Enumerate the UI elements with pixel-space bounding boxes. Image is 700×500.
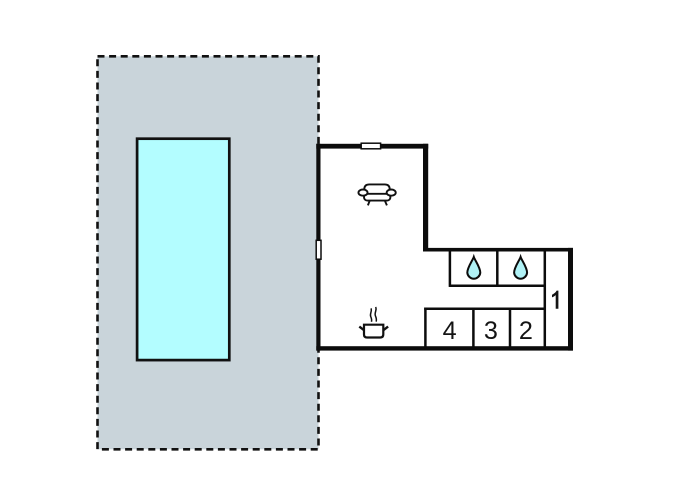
svg-text:4: 4 [443, 317, 457, 345]
svg-text:3: 3 [484, 317, 498, 345]
svg-text:2: 2 [519, 317, 533, 345]
